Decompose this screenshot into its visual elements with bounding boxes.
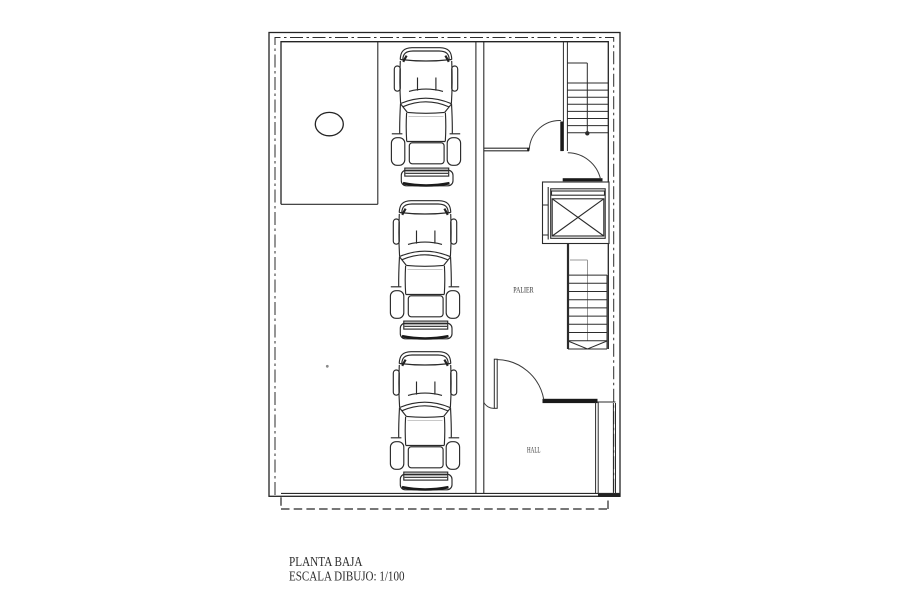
svg-text:PALIER: PALIER [513, 286, 534, 295]
svg-text:HALL: HALL [527, 446, 541, 455]
svg-text:PLANTA BAJA: PLANTA BAJA [289, 555, 363, 570]
svg-text:ESCALA DIBUJO: 1/100: ESCALA DIBUJO: 1/100 [289, 570, 405, 585]
